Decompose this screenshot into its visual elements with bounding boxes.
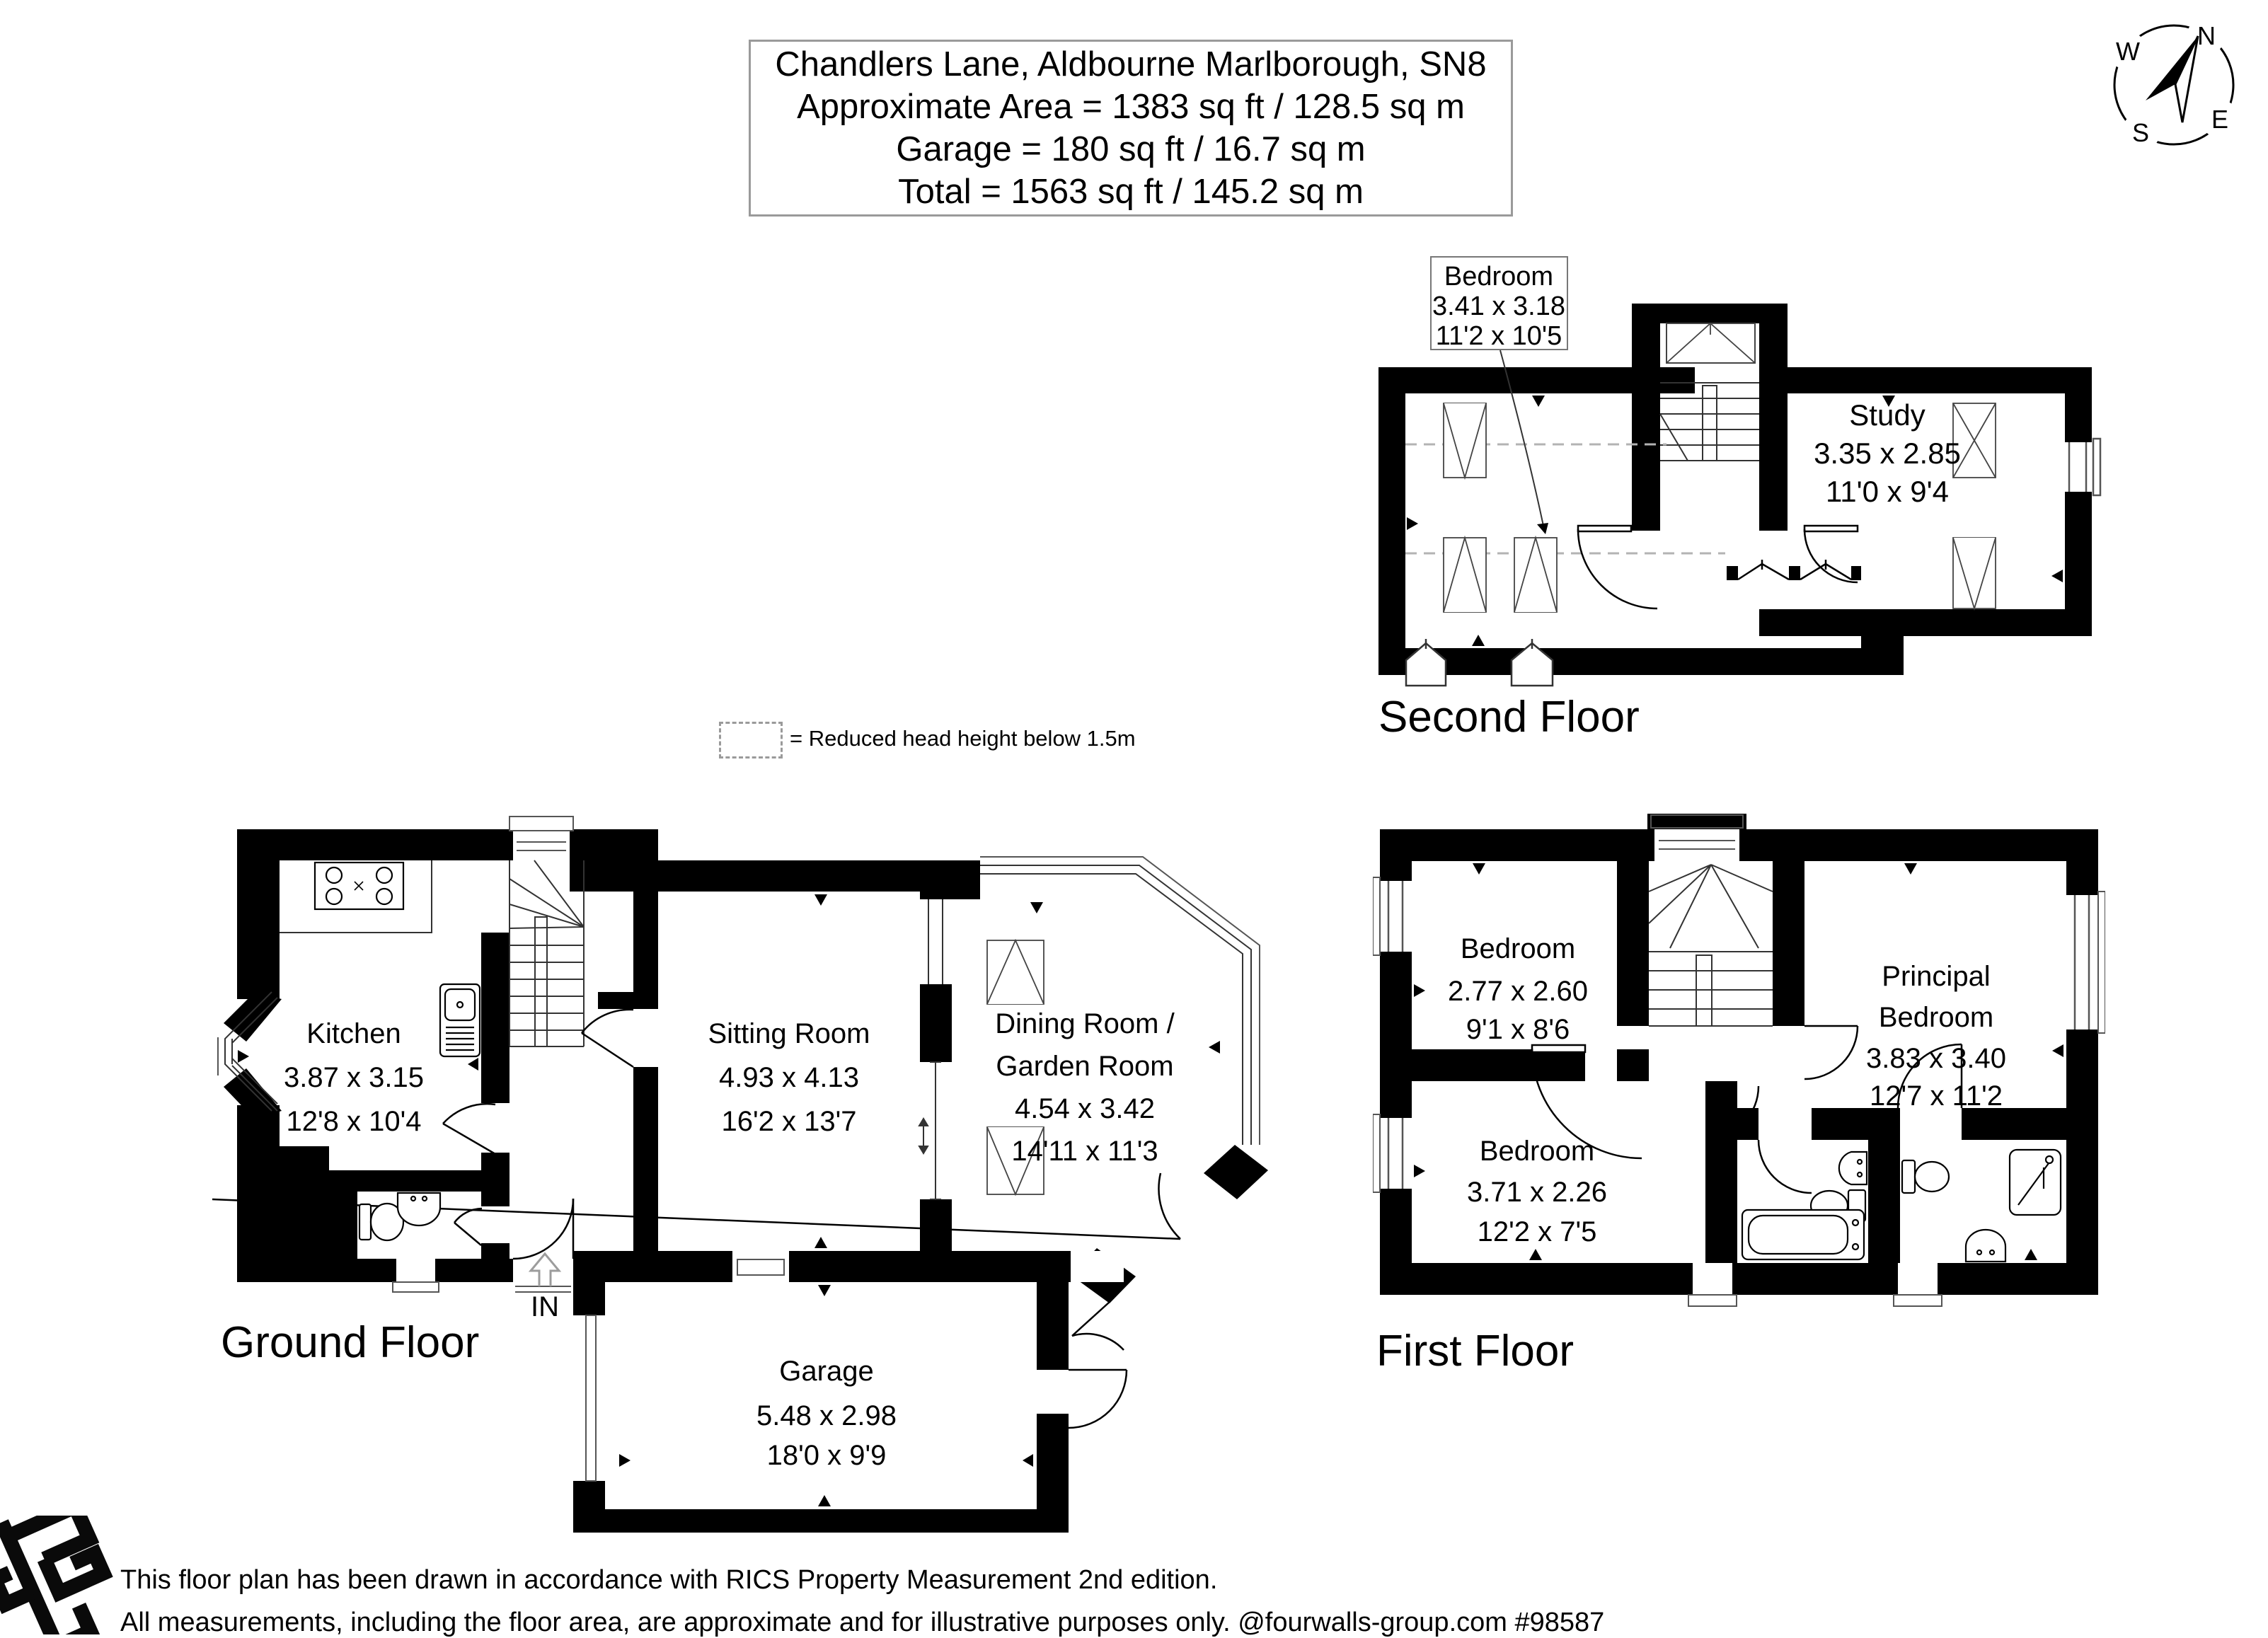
second-bedroom-metric: 3.41 x 3.18	[1432, 292, 1565, 321]
principal-imperial: 12'7 x 11'2	[1870, 1080, 2003, 1112]
kitchen-name: Kitchen	[306, 1018, 401, 1049]
bedroom2-imperial: 12'2 x 7'5	[1478, 1216, 1597, 1247]
ground-floor-walls	[224, 829, 1268, 1533]
bedroom1-name: Bedroom	[1461, 933, 1575, 964]
compass-rose-icon: N W S E	[2112, 13, 2262, 177]
entrance-arrow-icon	[531, 1254, 559, 1286]
kitchen-sink-icon	[440, 984, 480, 1056]
wc-fixtures	[359, 1193, 440, 1240]
sitting-name: Sitting Room	[708, 1018, 870, 1049]
garage-imperial: 18'0 x 9'9	[767, 1440, 887, 1471]
title-area: Approximate Area = 1383 sq ft / 128.5 sq…	[751, 86, 1511, 128]
dining-imperial: 14'11 x 11'3	[1011, 1136, 1158, 1167]
fourwalls-logo-icon	[0, 1516, 113, 1634]
measure-ticks-ground	[238, 894, 1220, 1506]
bedroom1-metric: 2.77 x 2.60	[1448, 976, 1588, 1007]
second-bedroom-name: Bedroom	[1444, 262, 1553, 292]
kitchen-metric: 3.87 x 3.15	[284, 1062, 424, 1093]
second-floor-title: Second Floor	[1378, 695, 1640, 740]
second-floor-doors	[1578, 526, 1858, 609]
title-garage: Garage = 180 sq ft / 16.7 sq m	[751, 128, 1511, 171]
footer-disclaimer: All measurements, including the floor ar…	[120, 1608, 1604, 1638]
study-imperial: 11'0 x 9'4	[1826, 475, 1949, 508]
principal-name1: Principal	[1882, 961, 1990, 992]
title-address: Chandlers Lane, Aldbourne Marlborough, S…	[751, 43, 1511, 86]
legend-text: = Reduced head height below 1.5m	[790, 726, 1136, 751]
dining-name1: Dining Room /	[995, 1008, 1175, 1039]
first-floor-stairs	[1649, 865, 1773, 1026]
first-floor-plan: Bedroom 2.77 x 2.60 9'1 x 8'6 Principal …	[1373, 814, 2105, 1316]
ground-floor-plan: Kitchen 3.87 x 3.15 12'8 x 10'4 Sitting …	[212, 814, 1295, 1564]
garage-metric: 5.48 x 2.98	[756, 1400, 897, 1431]
second-bedroom-imperial: 11'2 x 10'5	[1436, 321, 1562, 351]
study-metric: 3.35 x 2.85	[1814, 437, 1961, 470]
footer-rics-note: This floor plan has been drawn in accord…	[120, 1565, 1217, 1596]
compass-e: E	[2211, 105, 2228, 134]
second-floor-stairs	[1660, 383, 1759, 461]
title-box: Chandlers Lane, Aldbourne Marlborough, S…	[749, 40, 1513, 217]
sitting-imperial: 16'2 x 13'7	[722, 1106, 857, 1137]
principal-metric: 3.83 x 3.40	[1866, 1043, 2006, 1074]
kitchen-imperial: 12'8 x 10'4	[287, 1106, 422, 1137]
bedroom2-name: Bedroom	[1480, 1136, 1594, 1167]
stair-top-window	[510, 817, 573, 860]
ensuite-fixtures	[1902, 1150, 2061, 1262]
bedroom1-imperial: 9'1 x 8'6	[1466, 1014, 1570, 1045]
sitting-metric: 4.93 x 4.13	[719, 1062, 859, 1093]
first-floor-title: First Floor	[1376, 1329, 1574, 1374]
legend-reduced-head-height-swatch	[719, 722, 783, 759]
study-name: Study	[1849, 398, 1925, 432]
title-total: Total = 1563 sq ft / 145.2 sq m	[751, 171, 1511, 213]
kitchen-hob-icon	[315, 863, 403, 909]
ground-floor-title: Ground Floor	[221, 1320, 479, 1366]
dining-metric: 4.54 x 3.42	[1015, 1093, 1155, 1124]
in-label: IN	[531, 1291, 559, 1322]
compass-w: W	[2116, 37, 2140, 66]
compass-needle-light	[2175, 36, 2198, 122]
bedroom2-metric: 3.71 x 2.26	[1467, 1177, 1607, 1208]
principal-name2: Bedroom	[1879, 1002, 1993, 1033]
compass-s: S	[2132, 118, 2149, 147]
dining-name2: Garden Room	[996, 1051, 1173, 1082]
garage-door	[586, 1315, 596, 1481]
second-floor-plan: Bedroom 3.41 x 3.18 11'2 x 10'5 Study 3.…	[1373, 244, 2123, 739]
bathroom-fixtures	[1742, 1152, 1867, 1259]
compass-n: N	[2197, 21, 2216, 50]
garage-name: Garage	[779, 1356, 873, 1387]
